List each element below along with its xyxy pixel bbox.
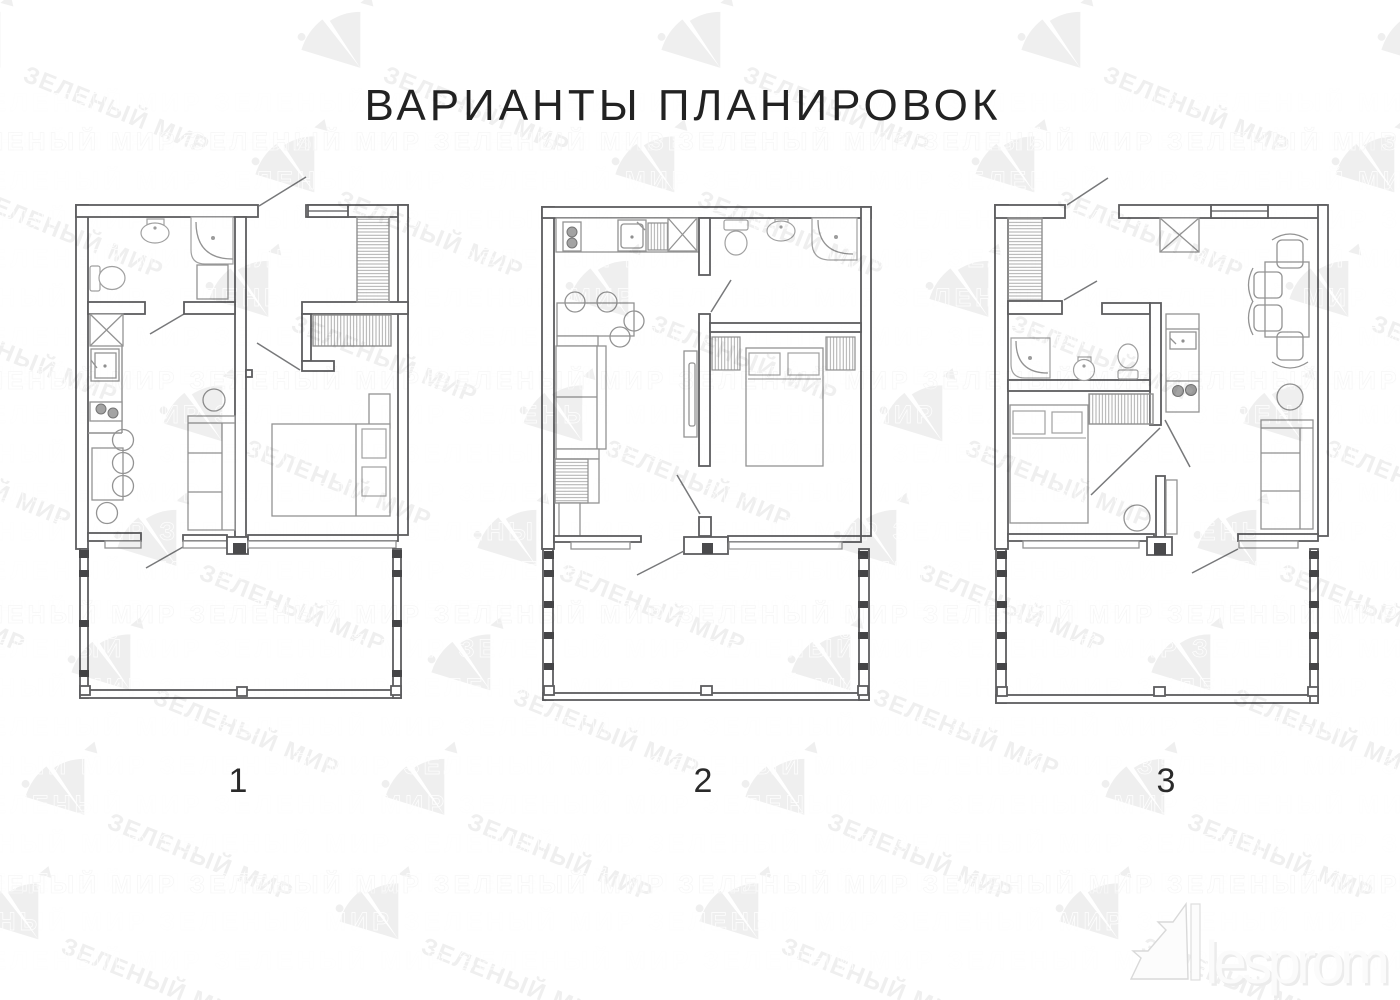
svg-text:lesprom: lesprom [1205,929,1390,996]
svg-text:ЗЕЛЕНЫЙ МИР ЗЕЛЕНЫЙ МИР ЗЕЛЕ: ЗЕЛЕНЫЙ МИР ЗЕЛЕНЫЙ МИР ЗЕЛЕНЫЙ МИР ЗЕЛЕ… [0,399,1400,429]
svg-text:ЗЕЛЕНЫЙ МИР ЗЕЛЕНЫЙ МИР ЗЕЛЕ: ЗЕЛЕНЫЙ МИР ЗЕЛЕНЫЙ МИР ЗЕЛЕНЫЙ МИР ЗЕЛЕ… [0,243,1400,273]
svg-text:ЗЕЛЕНЫЙ МИР ЗЕЛЕНЫЙ МИР ЗЕЛЕ: ЗЕЛЕНЫЙ МИР ЗЕЛЕНЫЙ МИР ЗЕЛЕНЫЙ МИР ЗЕЛЕ… [0,204,1400,234]
svg-text:ЗЕЛЕНЫЙ МИР ЗЕЛЕНЫЙ МИР ЗЕЛЕ: ЗЕЛЕНЫЙ МИР ЗЕЛЕНЫЙ МИР ЗЕЛЕНЫЙ МИР ЗЕЛЕ… [0,633,1400,663]
svg-text:ЗЕЛЕНЫЙ МИР ЗЕЛЕНЫЙ МИР ЗЕЛЕ: ЗЕЛЕНЫЙ МИР ЗЕЛЕНЫЙ МИР ЗЕЛЕНЫЙ МИР ЗЕЛЕ… [0,555,1400,585]
svg-text:1: 1 [229,762,248,800]
svg-text:ЗЕЛЕНЫЙ МИР ЗЕЛЕНЫЙ МИР ЗЕЛЕ: ЗЕЛЕНЫЙ МИР ЗЕЛЕНЫЙ МИР ЗЕЛЕНЫЙ МИР ЗЕЛЕ… [0,365,1400,395]
svg-text:ЗЕЛЕНЫЙ МИР ЗЕЛЕНЫЙ МИР ЗЕЛЕ: ЗЕЛЕНЫЙ МИР ЗЕЛЕНЫЙ МИР ЗЕЛЕНЫЙ МИР ЗЕЛЕ… [0,906,1400,936]
svg-text:ЗЕЛЕНЫЙ МИР ЗЕЛЕНЫЙ МИР ЗЕЛЕ: ЗЕЛЕНЫЙ МИР ЗЕЛЕНЫЙ МИР ЗЕЛЕНЫЙ МИР ЗЕЛЕ… [0,477,1400,507]
svg-text:3: 3 [1157,762,1176,800]
svg-text:ЗЕЛЕНЫЙ МИР ЗЕЛЕНЫЙ МИР ЗЕЛЕ: ЗЕЛЕНЫЙ МИР ЗЕЛЕНЫЙ МИР ЗЕЛЕНЫЙ МИР ЗЕЛЕ… [0,711,1400,741]
svg-text:ЗЕЛЕНЫЙ МИР ЗЕЛЕНЫЙ МИР ЗЕЛЕ: ЗЕЛЕНЫЙ МИР ЗЕЛЕНЫЙ МИР ЗЕЛЕНЫЙ МИР ЗЕЛЕ… [0,828,1400,858]
svg-text:ЗЕЛЕНЫЙ МИР ЗЕЛЕНЫЙ МИР ЗЕЛЕ: ЗЕЛЕНЫЙ МИР ЗЕЛЕНЫЙ МИР ЗЕЛЕНЫЙ МИР ЗЕЛЕ… [0,282,1400,312]
svg-text:ЗЕЛЕНЫЙ МИР ЗЕЛЕНЫЙ МИР ЗЕЛЕ: ЗЕЛЕНЫЙ МИР ЗЕЛЕНЫЙ МИР ЗЕЛЕНЫЙ МИР ЗЕЛЕ… [0,87,1400,117]
svg-text:ЗЕЛЕНЫЙ МИР ЗЕЛЕНЫЙ МИР ЗЕЛЕ: ЗЕЛЕНЫЙ МИР ЗЕЛЕНЫЙ МИР ЗЕЛЕНЫЙ МИР ЗЕЛЕ… [0,672,1400,702]
svg-text:ЗЕЛЕНЫЙ МИР ЗЕЛЕНЫЙ МИР ЗЕЛЕ: ЗЕЛЕНЫЙ МИР ЗЕЛЕНЫЙ МИР ЗЕЛЕНЫЙ МИР ЗЕЛЕ… [0,869,1400,899]
svg-text:2: 2 [694,762,713,800]
svg-text:ЗЕЛЕНЫЙ МИР ЗЕЛЕНЫЙ МИР ЗЕЛЕ: ЗЕЛЕНЫЙ МИР ЗЕЛЕНЫЙ МИР ЗЕЛЕНЫЙ МИР ЗЕЛЕ… [0,126,1400,156]
svg-text:ЗЕЛЕНЫЙ МИР ЗЕЛЕНЫЙ МИР ЗЕЛЕ: ЗЕЛЕНЫЙ МИР ЗЕЛЕНЫЙ МИР ЗЕЛЕНЫЙ МИР ЗЕЛЕ… [0,599,1400,629]
svg-text:ЗЕЛЕНЫЙ МИР ЗЕЛЕНЫЙ МИР ЗЕЛЕ: ЗЕЛЕНЫЙ МИР ЗЕЛЕНЫЙ МИР ЗЕЛЕНЫЙ МИР ЗЕЛЕ… [0,516,1400,546]
svg-text:ЗЕЛЕНЫЙ МИР ЗЕЛЕНЫЙ МИР ЗЕЛЕ: ЗЕЛЕНЫЙ МИР ЗЕЛЕНЫЙ МИР ЗЕЛЕНЫЙ МИР ЗЕЛЕ… [0,321,1400,351]
svg-text:ЗЕЛЕНЫЙ МИР ЗЕЛЕНЫЙ МИР ЗЕЛЕ: ЗЕЛЕНЫЙ МИР ЗЕЛЕНЫЙ МИР ЗЕЛЕНЫЙ МИР ЗЕЛЕ… [0,945,1400,975]
svg-text:ЗЕЛЕНЫЙ МИР ЗЕЛЕНЫЙ МИР ЗЕЛЕ: ЗЕЛЕНЫЙ МИР ЗЕЛЕНЫЙ МИР ЗЕЛЕНЫЙ МИР ЗЕЛЕ… [0,165,1400,195]
svg-text:ЗЕЛЕНЫЙ МИР ЗЕЛЕНЫЙ МИР ЗЕЛЕ: ЗЕЛЕНЫЙ МИР ЗЕЛЕНЫЙ МИР ЗЕЛЕНЫЙ МИР ЗЕЛЕ… [0,438,1400,468]
